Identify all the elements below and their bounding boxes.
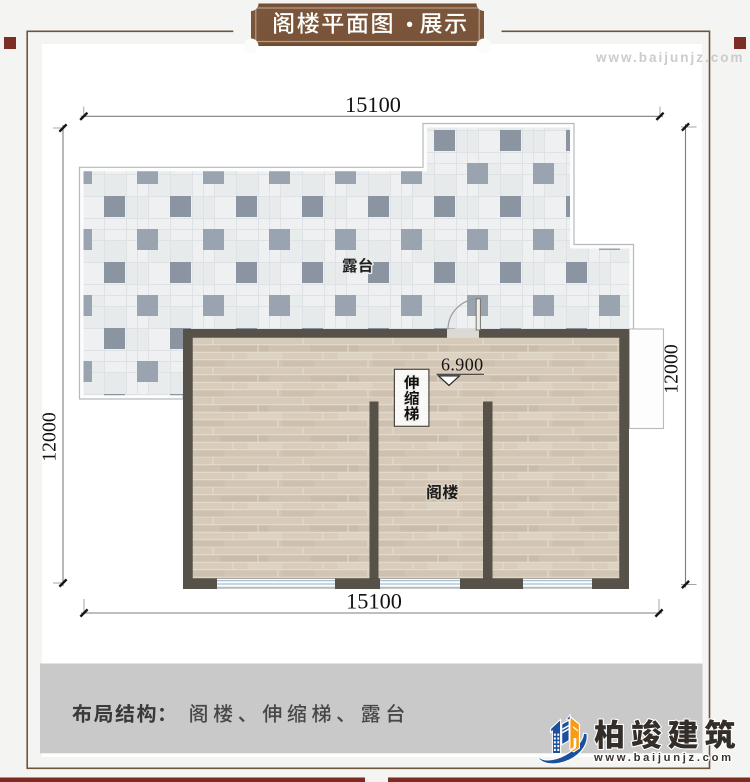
- svg-text:12000: 12000: [661, 344, 683, 394]
- svg-text:6.900: 6.900: [441, 355, 484, 375]
- svg-text:15100: 15100: [346, 589, 402, 614]
- svg-text:www.baijunjz.com: www.baijunjz.com: [593, 752, 734, 764]
- svg-text:12000: 12000: [39, 412, 61, 462]
- svg-text:15100: 15100: [345, 92, 401, 117]
- svg-text:www.baijunjz.com: www.baijunjz.com: [595, 50, 745, 65]
